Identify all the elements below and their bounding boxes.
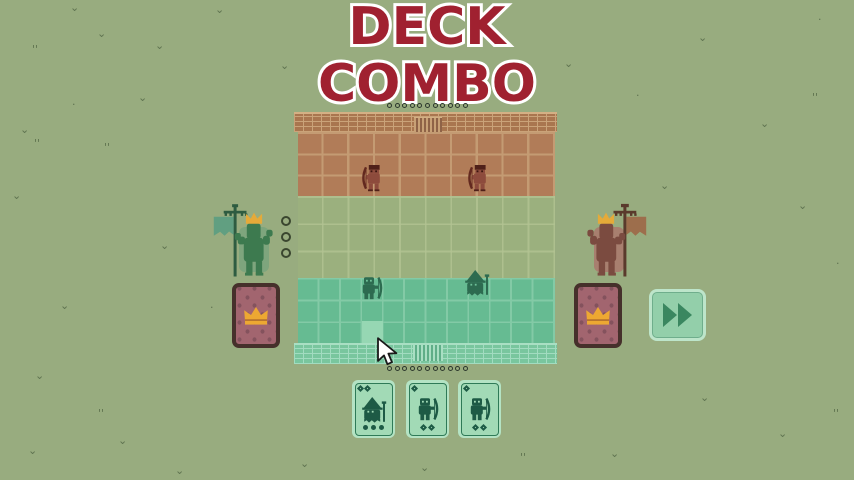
health-dot (440, 103, 445, 108)
grass-mark: ⌄ (20, 124, 29, 135)
grass-mark: ⌄ (760, 118, 769, 129)
grass-mark: ⌄ (118, 435, 127, 446)
health-dot (417, 366, 422, 371)
card-pips (473, 425, 486, 430)
health-dot (433, 366, 438, 371)
grass-mark: ⌄ (35, 370, 44, 381)
fast-forward-icon (661, 301, 695, 329)
hovered-cell[interactable] (362, 321, 383, 343)
enemy-zone-grid (298, 132, 555, 196)
crown-icon (241, 305, 271, 327)
hand-card-archer[interactable] (458, 380, 501, 438)
health-dot (463, 103, 468, 108)
grass-mark: '' (34, 138, 40, 149)
grass-mark: ⌄ (798, 200, 807, 211)
health-dot (387, 103, 392, 108)
red-king-figure (576, 203, 648, 281)
health-dot (387, 366, 392, 371)
grass-mark: ⌄ (160, 240, 169, 251)
health-dot (417, 103, 422, 108)
player-health-dots (387, 366, 468, 371)
grass-mark: ⌄ (60, 300, 69, 311)
grass-mark: ⌄ (660, 180, 669, 191)
cost-gem-icon (462, 384, 469, 391)
card-cost-gems (464, 386, 469, 391)
player-archer-unit (360, 276, 384, 304)
right-deck-card-back[interactable] (574, 283, 622, 348)
health-dot (440, 366, 445, 371)
health-dot (410, 366, 415, 371)
stat-pip (363, 425, 368, 430)
grass-mark: '' (104, 142, 110, 153)
stat-pip (420, 423, 427, 430)
grass-mark: ⌄ (610, 448, 619, 459)
stat-pip (379, 425, 384, 430)
grass-mark: · (210, 302, 214, 313)
grass-mark: ⌄ (420, 462, 429, 473)
cost-gem-icon (364, 384, 371, 391)
grass-mark: ⌄ (175, 465, 184, 476)
health-dot (425, 103, 430, 108)
health-dot (433, 103, 438, 108)
health-dot (395, 366, 400, 371)
player-zone-grid[interactable] (298, 278, 555, 343)
card-cost-gems (412, 386, 417, 391)
card-pips (363, 425, 384, 430)
game-stage: DECK COMBO (0, 0, 854, 480)
cost-gem-icon (410, 384, 417, 391)
grass-mark: ⌄ (778, 428, 787, 439)
card-unit-art (416, 397, 440, 425)
hand-card-face (355, 383, 393, 436)
stat-pip (480, 423, 487, 430)
left-deck-card-back[interactable] (232, 283, 280, 348)
health-dot (448, 366, 453, 371)
card-cost-gems (358, 386, 371, 391)
game-title-line1: DECK (0, 0, 854, 56)
health-dot (448, 103, 453, 108)
card-pips (421, 425, 434, 430)
health-dot (425, 366, 430, 371)
player-wizard-unit (464, 270, 490, 302)
player-gate (413, 345, 443, 361)
grass-mark: · (836, 258, 840, 269)
fast-forward-button-face (652, 292, 703, 338)
grass-mark: '' (98, 408, 104, 419)
enemy-archer-unit (466, 163, 490, 197)
enemy-health-dots (387, 103, 468, 108)
health-dot (455, 366, 460, 371)
grass-mark: ⌄ (700, 392, 709, 403)
health-dot (402, 366, 407, 371)
hand-card-archer[interactable] (406, 380, 449, 438)
grass-mark: '' (520, 452, 526, 463)
card-unit-art (468, 397, 492, 425)
health-dot (402, 103, 407, 108)
enemy-gate (414, 117, 442, 133)
stat-pip (371, 425, 376, 430)
health-dot (410, 103, 415, 108)
fast-forward-button[interactable] (649, 289, 706, 341)
health-dot (395, 103, 400, 108)
red-king-icon (576, 203, 648, 281)
stat-pip (472, 423, 479, 430)
grass-mark: ⌄ (12, 190, 21, 201)
neutral-zone-grid (298, 196, 555, 278)
health-dot (455, 103, 460, 108)
grass-mark: ⌄ (300, 458, 309, 469)
green-king-icon (212, 203, 284, 281)
hand-card-wizard[interactable] (352, 380, 395, 438)
grass-mark: ⌄ (28, 445, 37, 456)
green-king-figure (212, 203, 284, 281)
hand-card-face (461, 383, 499, 436)
enemy-archer-unit (360, 163, 384, 197)
stat-pip (428, 423, 435, 430)
hand-card-face (409, 383, 447, 436)
crown-icon (583, 305, 613, 327)
health-dot (463, 366, 468, 371)
grass-mark: '' (833, 408, 839, 419)
